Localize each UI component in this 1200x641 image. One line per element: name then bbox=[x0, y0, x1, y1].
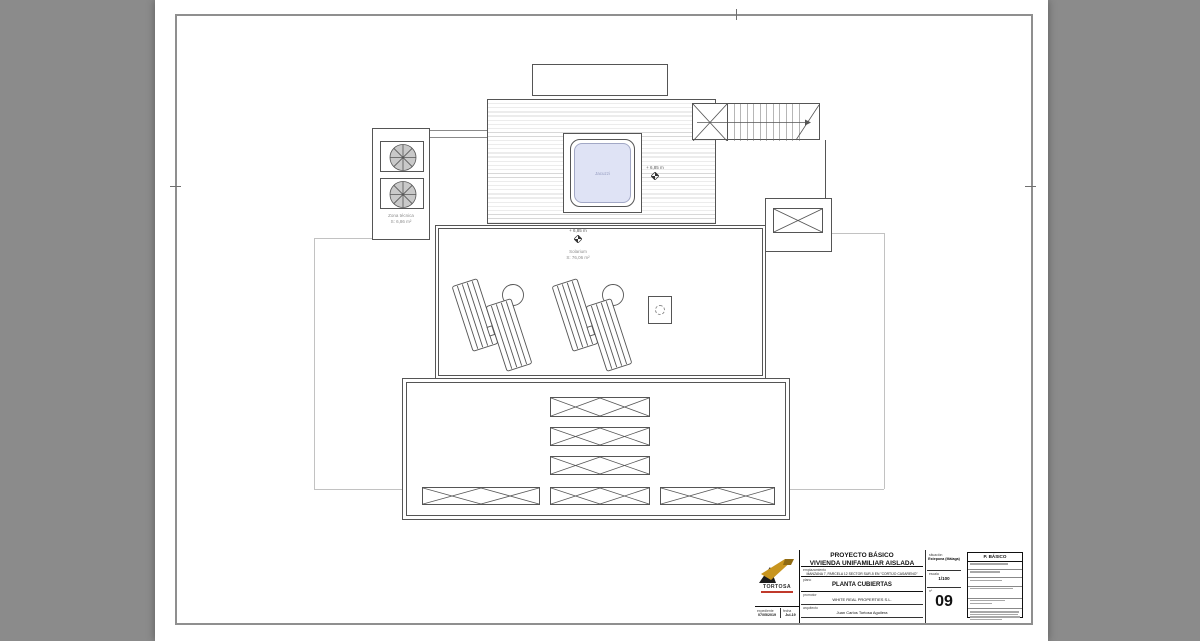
arquitecto-value: Juan Carlos Tortosa Aguilera bbox=[801, 610, 923, 615]
revision-row bbox=[968, 588, 1022, 599]
plano-row: plano PLANTA CUBIERTAS bbox=[801, 577, 923, 592]
emplazamiento-row: emplazamiento MANZANA 7, PARCELA 12 SECT… bbox=[801, 567, 923, 577]
revision-box-title: P. BÁSICO bbox=[968, 553, 1022, 562]
technical-zone-label: Zona técnica S: 6,86 m² bbox=[372, 213, 430, 224]
stair-shaft-connector bbox=[825, 140, 826, 198]
sheet-number-field: nº 09 bbox=[927, 588, 961, 620]
fan-unit-2 bbox=[380, 178, 424, 209]
situacion-field: situación Estepona (Málaga) bbox=[927, 552, 961, 571]
registration-mark-right bbox=[1025, 186, 1036, 187]
titleblock-main-column: PROYECTO BÁSICO VIVIENDA UNIFAMILIAR AIS… bbox=[801, 550, 923, 623]
jacuzzi-label: Jacuzzi bbox=[595, 171, 610, 176]
plan-sheet: Zona técnica S: 6,86 m² Jacuzzi + 6,85 m bbox=[155, 0, 1048, 641]
skylight-panel-1 bbox=[550, 397, 650, 417]
escala-value: 1/100 bbox=[927, 576, 961, 581]
sun-loungers bbox=[450, 275, 690, 380]
skylight-panel-2 bbox=[550, 427, 650, 446]
promotor-value: WHITE REAL PROPERTIES S.L. bbox=[801, 597, 923, 602]
titleblock-divider-v2 bbox=[925, 550, 926, 623]
technical-zone-area: S: 6,86 m² bbox=[372, 219, 430, 225]
fan-icon bbox=[381, 142, 425, 173]
project-title-row: PROYECTO BÁSICO VIVIENDA UNIFAMILIAR AIS… bbox=[801, 550, 923, 567]
viewer-canvas: Zona técnica S: 6,86 m² Jacuzzi + 6,85 m bbox=[0, 0, 1200, 641]
lower-floor-outline-left bbox=[314, 238, 315, 490]
situacion-value: Estepona (Málaga) bbox=[927, 557, 961, 562]
fecha-field: fecha Jul-19 bbox=[780, 608, 800, 618]
revision-row bbox=[968, 563, 1022, 570]
promotor-row: promotor WHITE REAL PROPERTIES S.L. bbox=[801, 592, 923, 605]
drain-icon bbox=[655, 305, 665, 315]
stair-direction-arrow bbox=[697, 104, 815, 141]
stair-bulkhead bbox=[532, 64, 668, 96]
level-diamond-icon bbox=[574, 235, 582, 243]
skylight-panel-5 bbox=[550, 487, 650, 505]
expediente-field: expediente 07/05/2019 bbox=[755, 608, 779, 618]
skylight-panel-6 bbox=[660, 487, 775, 505]
emplazamiento-value: MANZANA 7, PARCELA 12 SECTOR SUR-5 EN "C… bbox=[801, 572, 923, 577]
lower-floor-outline-left-top bbox=[314, 238, 372, 239]
project-title-line2: VIVIENDA UNIFAMILIAR AISLADA bbox=[801, 560, 923, 568]
fan-icon bbox=[381, 179, 425, 210]
logo: TORTOSA bbox=[757, 558, 797, 602]
skylight-panel-3 bbox=[550, 456, 650, 475]
deck-level-marker: + 6,85 m bbox=[633, 165, 677, 180]
revision-box: P. BÁSICO bbox=[967, 552, 1023, 618]
lower-floor-outline-left-bottom bbox=[314, 489, 402, 490]
expediente-value: 07/05/2019 bbox=[755, 613, 779, 618]
revision-row bbox=[968, 600, 1022, 609]
logo-text: TORTOSA bbox=[757, 584, 797, 590]
logo-accent-bar bbox=[761, 591, 793, 593]
revision-row bbox=[968, 580, 1022, 587]
deck-level-text: + 6,85 m bbox=[633, 165, 677, 171]
skylight-panel-4 bbox=[422, 487, 540, 505]
title-block: TORTOSA expediente 07/05/2019 fecha Jul-… bbox=[755, 550, 1031, 623]
jacuzzi-water: Jacuzzi bbox=[574, 143, 631, 203]
level-diamond-icon bbox=[651, 172, 659, 180]
shaft-skylight bbox=[773, 208, 823, 233]
tortosa-logo-icon bbox=[757, 558, 797, 584]
technical-zone-connector bbox=[430, 130, 487, 138]
fan-unit-1 bbox=[380, 141, 424, 172]
lower-floor-outline-right bbox=[884, 233, 885, 489]
arquitecto-row: arquitecto Juan Carlos Tortosa Aguilera bbox=[801, 605, 923, 618]
solarium-area: S: 76,06 m² bbox=[553, 255, 603, 261]
sheet-number-value: 09 bbox=[927, 593, 961, 611]
escala-field: escala 1/100 bbox=[927, 571, 961, 588]
project-title-line1: PROYECTO BÁSICO bbox=[801, 552, 923, 560]
registration-mark-left bbox=[170, 186, 181, 187]
titleblock-divider-h1 bbox=[755, 606, 799, 607]
fecha-value: Jul-19 bbox=[781, 613, 800, 618]
revision-notes bbox=[968, 609, 1022, 620]
registration-mark-top bbox=[736, 9, 737, 20]
staircase bbox=[692, 103, 820, 140]
solarium-level-marker: + 6,85 m Solarium S: 76,06 m² bbox=[553, 228, 603, 260]
titleblock-side-column: situación Estepona (Málaga) escala 1/100… bbox=[927, 552, 961, 623]
lower-floor-outline-right-bottom bbox=[790, 489, 884, 490]
floor-drain-box bbox=[648, 296, 672, 324]
lower-floor-outline-right-top bbox=[832, 233, 884, 234]
plano-value: PLANTA CUBIERTAS bbox=[801, 582, 923, 589]
solarium-level-text: + 6,85 m bbox=[553, 228, 603, 234]
revision-row bbox=[968, 571, 1022, 578]
